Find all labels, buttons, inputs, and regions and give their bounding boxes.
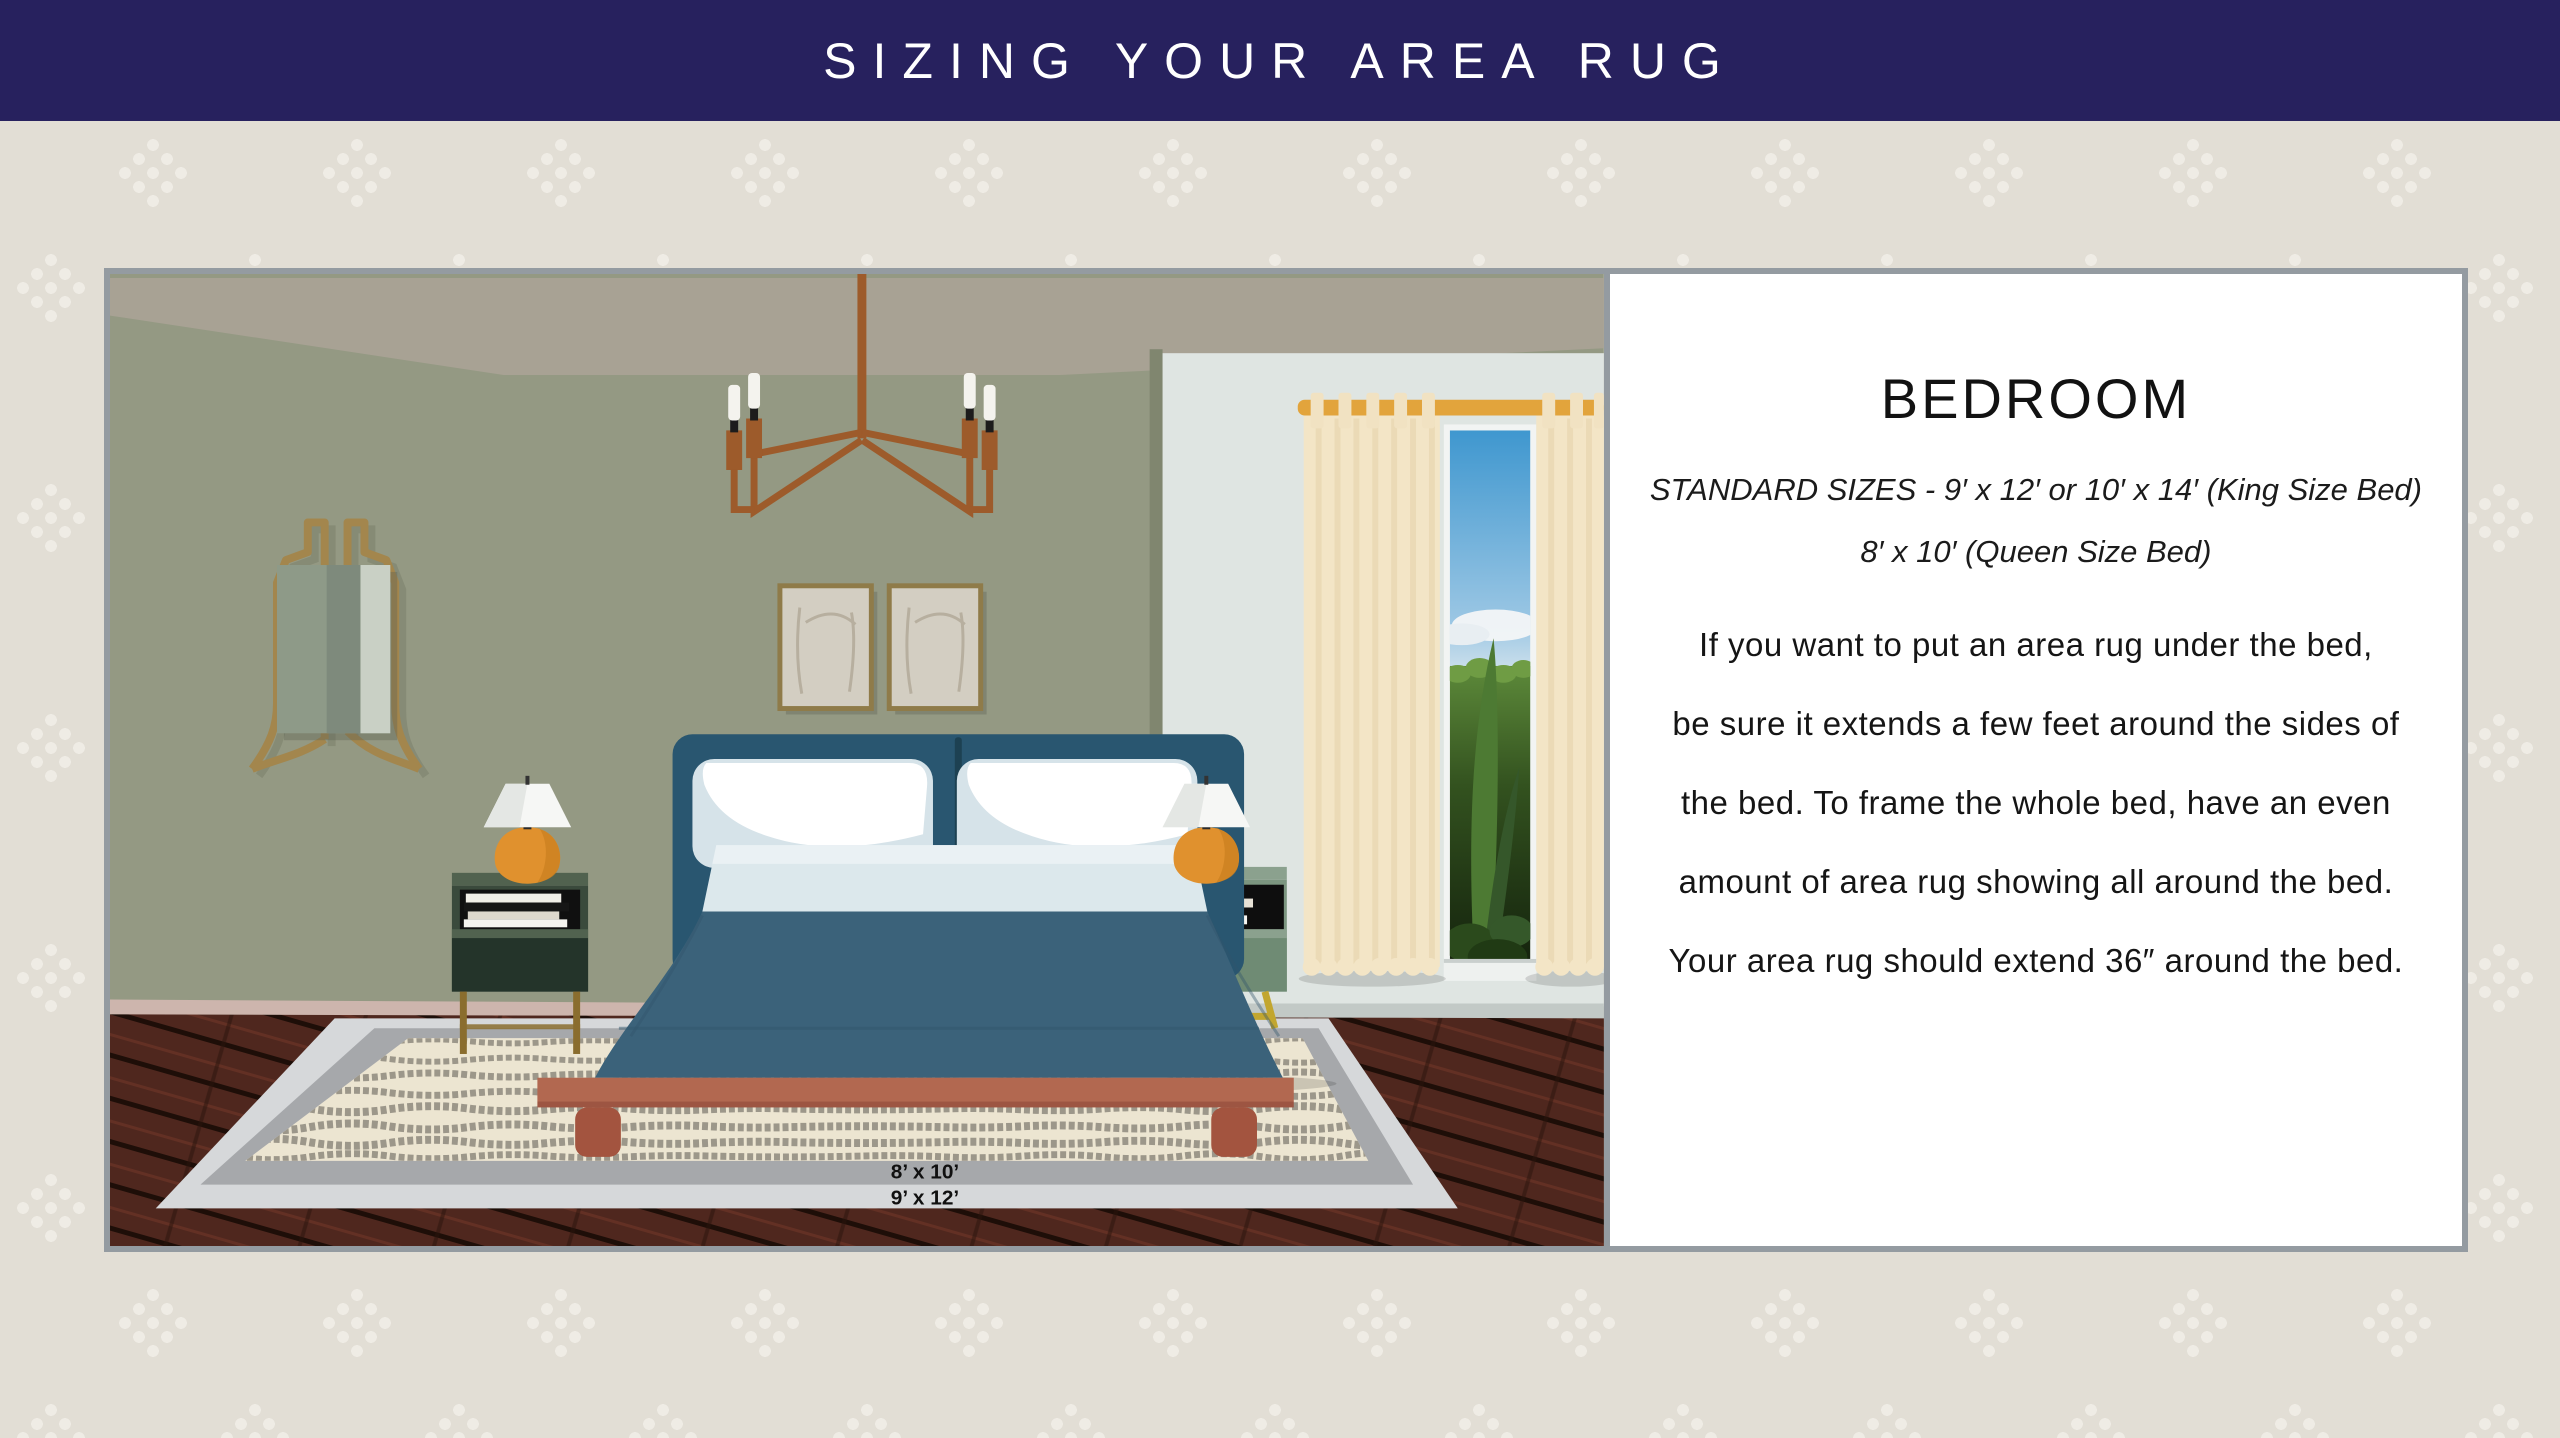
room-heading: BEDROOM [1650, 366, 2422, 431]
body-line-3: the bed. To frame the whole bed, have an… [1650, 763, 2422, 842]
bed-leg-left [575, 1107, 621, 1156]
bedroom-scene: 8’ x 10’ 9’ x 12’ [110, 274, 1604, 1246]
body-line-1: If you want to put an area rug under the… [1650, 605, 2422, 684]
bedroom-illustration: 8’ x 10’ 9’ x 12’ [110, 274, 1604, 1246]
standard-sizes-line-1: STANDARD SIZES - 9′ x 12′ or 10′ x 14′ (… [1650, 459, 2422, 521]
books [464, 894, 569, 928]
rug-label-outer: 9’ x 12’ [891, 1186, 959, 1209]
duvet [595, 911, 1283, 1077]
curtain-left [1304, 416, 1440, 967]
bed-frame-rail [537, 1078, 1293, 1102]
title-banner: SIZING YOUR AREA RUG [0, 0, 2560, 121]
window [1434, 424, 1539, 980]
content-frame: 8’ x 10’ 9’ x 12’ BEDROOM STANDARD SIZES… [104, 268, 2468, 1252]
bed-leg-right [1211, 1107, 1257, 1156]
page-title: SIZING YOUR AREA RUG [823, 32, 1737, 90]
nightstand-left [452, 873, 588, 1054]
rug-guidance-text: If you want to put an area rug under the… [1650, 605, 2422, 1000]
body-line-5: Your area rug should extend 36″ around t… [1650, 921, 2422, 1000]
body-line-2: be sure it extends a few feet around the… [1650, 684, 2422, 763]
info-panel: BEDROOM STANDARD SIZES - 9′ x 12′ or 10′… [1604, 274, 2462, 1246]
body-line-4: amount of area rug showing all around th… [1650, 842, 2422, 921]
standard-sizes-line-2: 8′ x 10′ (Queen Size Bed) [1650, 521, 2422, 583]
rug-label-inner: 8’ x 10’ [891, 1161, 959, 1184]
